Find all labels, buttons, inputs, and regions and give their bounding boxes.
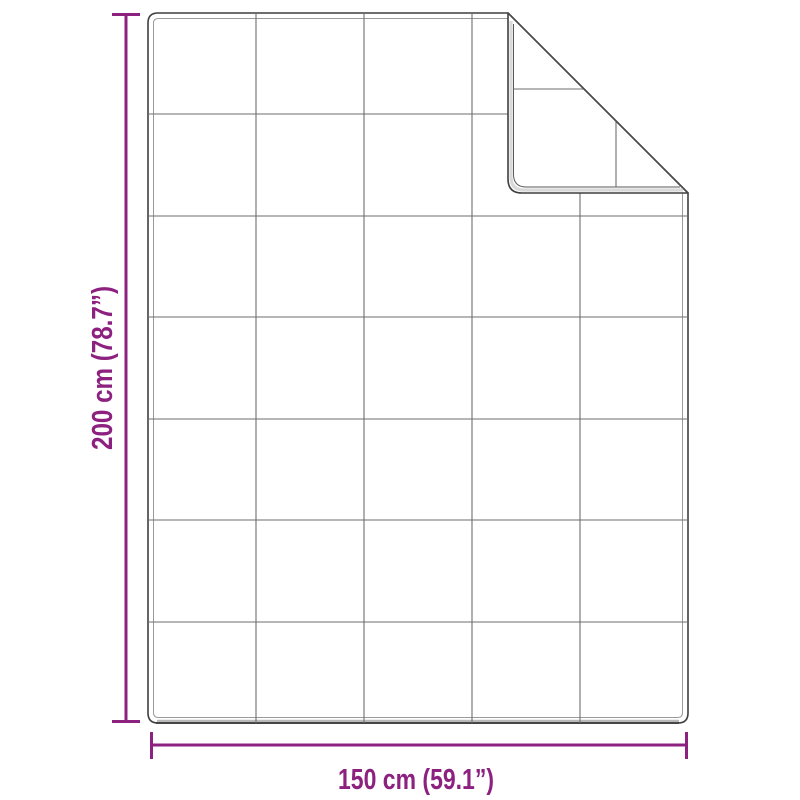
folded-corner [508, 13, 688, 193]
width-dimension [152, 732, 687, 759]
blanket [148, 13, 688, 723]
height-label: 200 cm (78.7”) [87, 286, 119, 450]
dimension-diagram-canvas: 200 cm (78.7”) 150 cm (59.1”) [0, 0, 800, 800]
width-label: 150 cm (59.1”) [338, 764, 494, 796]
blanket-dimension-diagram: 200 cm (78.7”) 150 cm (59.1”) [0, 0, 800, 800]
